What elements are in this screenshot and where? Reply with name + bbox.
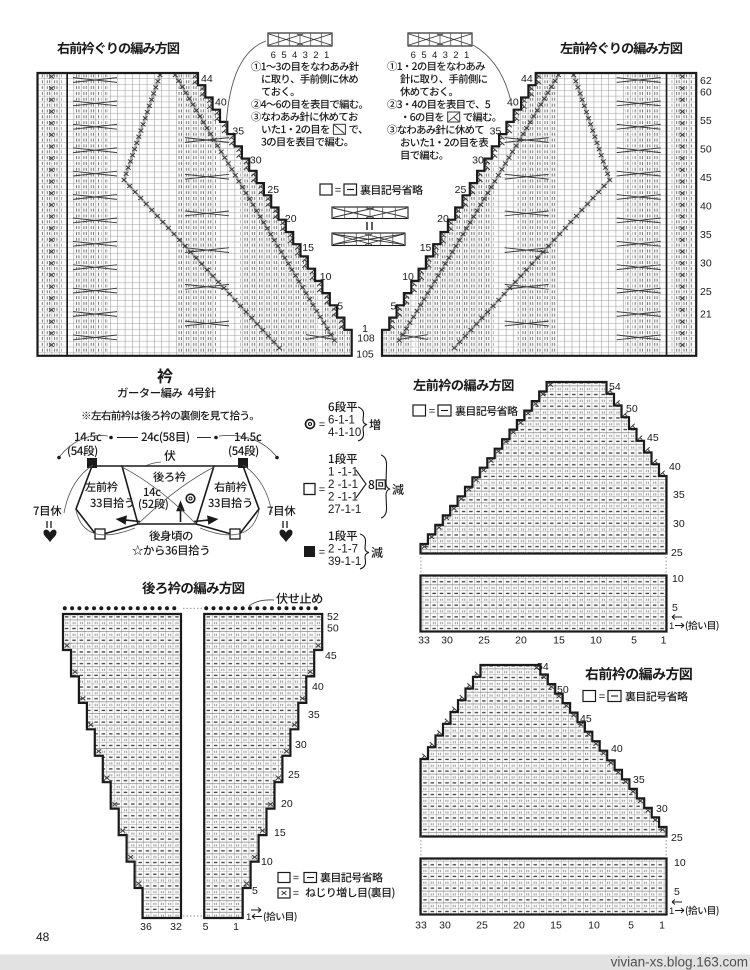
svg-text:50: 50	[557, 684, 569, 696]
svg-text:62: 62	[700, 75, 712, 87]
svg-text:3: 3	[443, 50, 448, 61]
svg-text:25: 25	[288, 769, 300, 781]
svg-text:=: =	[319, 547, 325, 559]
svg-text:30: 30	[439, 920, 451, 932]
svg-text:35: 35	[700, 229, 712, 241]
svg-text:33: 33	[415, 920, 427, 932]
svg-text:25: 25	[478, 635, 490, 647]
svg-text:40: 40	[507, 96, 519, 108]
svg-text:50: 50	[700, 143, 712, 155]
svg-text:5: 5	[252, 885, 258, 897]
svg-text:40: 40	[669, 461, 681, 473]
svg-text:32: 32	[170, 921, 182, 933]
svg-text:40: 40	[215, 96, 227, 108]
svg-text:10: 10	[261, 856, 273, 868]
svg-text:40: 40	[700, 200, 712, 212]
svg-text:30: 30	[250, 155, 262, 167]
svg-text:5: 5	[203, 921, 209, 933]
svg-text:33: 33	[418, 635, 430, 647]
svg-text:5: 5	[421, 50, 426, 61]
svg-text:1: 1	[669, 621, 674, 632]
svg-text:15: 15	[550, 920, 562, 932]
svg-text:60: 60	[700, 86, 712, 98]
svg-text:25: 25	[267, 184, 279, 196]
svg-text:25: 25	[700, 286, 712, 298]
svg-text:20: 20	[281, 798, 293, 810]
svg-text:=: =	[335, 185, 341, 197]
svg-text:45: 45	[325, 650, 337, 662]
svg-text:25: 25	[455, 184, 467, 196]
svg-text:=: =	[293, 888, 299, 900]
svg-text:25: 25	[476, 920, 488, 932]
svg-text:15: 15	[553, 635, 565, 647]
svg-text:5: 5	[281, 50, 286, 61]
svg-text:35: 35	[633, 774, 645, 786]
svg-text:1: 1	[659, 920, 665, 932]
svg-text:=: =	[319, 484, 325, 496]
svg-text:35: 35	[308, 709, 320, 721]
svg-text:35: 35	[232, 126, 244, 138]
svg-text:44: 44	[201, 73, 213, 85]
svg-text:4: 4	[432, 50, 437, 61]
svg-text:40: 40	[312, 681, 324, 693]
svg-text:30: 30	[656, 803, 668, 815]
svg-text:105: 105	[356, 349, 374, 361]
svg-text:30: 30	[673, 518, 685, 530]
svg-text:52: 52	[327, 611, 339, 623]
svg-text:5: 5	[628, 920, 634, 932]
svg-text:108: 108	[357, 333, 375, 345]
svg-text:20: 20	[513, 920, 525, 932]
svg-text:5: 5	[337, 300, 343, 312]
svg-text:50: 50	[626, 403, 638, 415]
svg-text:15: 15	[420, 242, 432, 254]
svg-text:10: 10	[674, 857, 686, 869]
svg-text:35: 35	[490, 126, 502, 138]
svg-text:39-1-1: 39-1-1	[328, 556, 361, 568]
svg-text:2: 2	[313, 50, 318, 61]
svg-text:15: 15	[302, 242, 314, 254]
svg-text:4-1-10: 4-1-10	[328, 427, 361, 439]
svg-text:15: 15	[274, 827, 286, 839]
svg-text:48: 48	[36, 930, 50, 944]
svg-text:25: 25	[671, 832, 683, 844]
svg-text:10: 10	[672, 573, 684, 585]
svg-text:10: 10	[402, 271, 414, 283]
svg-text:10: 10	[320, 271, 332, 283]
svg-text:55: 55	[700, 115, 712, 127]
svg-text:2 -1-1: 2 -1-1	[328, 492, 358, 504]
svg-text:5: 5	[674, 886, 680, 898]
svg-text:30: 30	[441, 635, 453, 647]
svg-text:1: 1	[246, 912, 251, 923]
svg-text:5: 5	[672, 602, 678, 614]
svg-text:25: 25	[671, 547, 683, 559]
svg-text:50: 50	[327, 623, 339, 635]
svg-text:45: 45	[700, 172, 712, 184]
svg-text:10: 10	[588, 920, 600, 932]
svg-text:21: 21	[700, 309, 712, 321]
svg-text:1: 1	[464, 50, 469, 61]
svg-text:6-1-1: 6-1-1	[328, 415, 355, 427]
svg-text:30: 30	[472, 155, 484, 167]
svg-text:10: 10	[590, 635, 602, 647]
svg-text:30: 30	[700, 257, 712, 269]
svg-text:2 -1-7: 2 -1-7	[328, 544, 358, 556]
svg-text:1: 1	[233, 921, 239, 933]
svg-text:1: 1	[324, 50, 329, 61]
svg-text:2: 2	[453, 50, 458, 61]
svg-text:5: 5	[631, 635, 637, 647]
svg-text:2 -1-1: 2 -1-1	[328, 479, 358, 491]
svg-text:vivian-xs.blog.163.com: vivian-xs.blog.163.com	[611, 955, 748, 970]
svg-text:36: 36	[140, 921, 152, 933]
svg-text:45: 45	[580, 713, 592, 725]
svg-text:5: 5	[391, 300, 397, 312]
svg-text:4: 4	[292, 50, 297, 61]
svg-text:1: 1	[669, 906, 674, 917]
svg-text:1: 1	[661, 635, 667, 647]
svg-text:6: 6	[271, 50, 276, 61]
svg-text:45: 45	[647, 432, 659, 444]
svg-text:20: 20	[515, 635, 527, 647]
svg-text:3: 3	[303, 50, 308, 61]
svg-text:6: 6	[411, 50, 416, 61]
svg-text:30: 30	[295, 739, 307, 751]
svg-text:1 -1-1: 1 -1-1	[328, 467, 358, 479]
svg-text:=: =	[599, 691, 605, 703]
svg-text:54: 54	[537, 661, 549, 673]
svg-text:27-1-1: 27-1-1	[328, 504, 361, 516]
svg-text:54: 54	[609, 381, 621, 393]
svg-text:44: 44	[521, 73, 533, 85]
svg-text:40: 40	[611, 743, 623, 755]
svg-text:20: 20	[285, 213, 297, 225]
svg-text:=: =	[429, 406, 435, 418]
svg-text:=: =	[293, 872, 299, 884]
svg-text:=: =	[319, 419, 325, 431]
svg-text:35: 35	[673, 489, 685, 501]
svg-text:20: 20	[437, 213, 449, 225]
